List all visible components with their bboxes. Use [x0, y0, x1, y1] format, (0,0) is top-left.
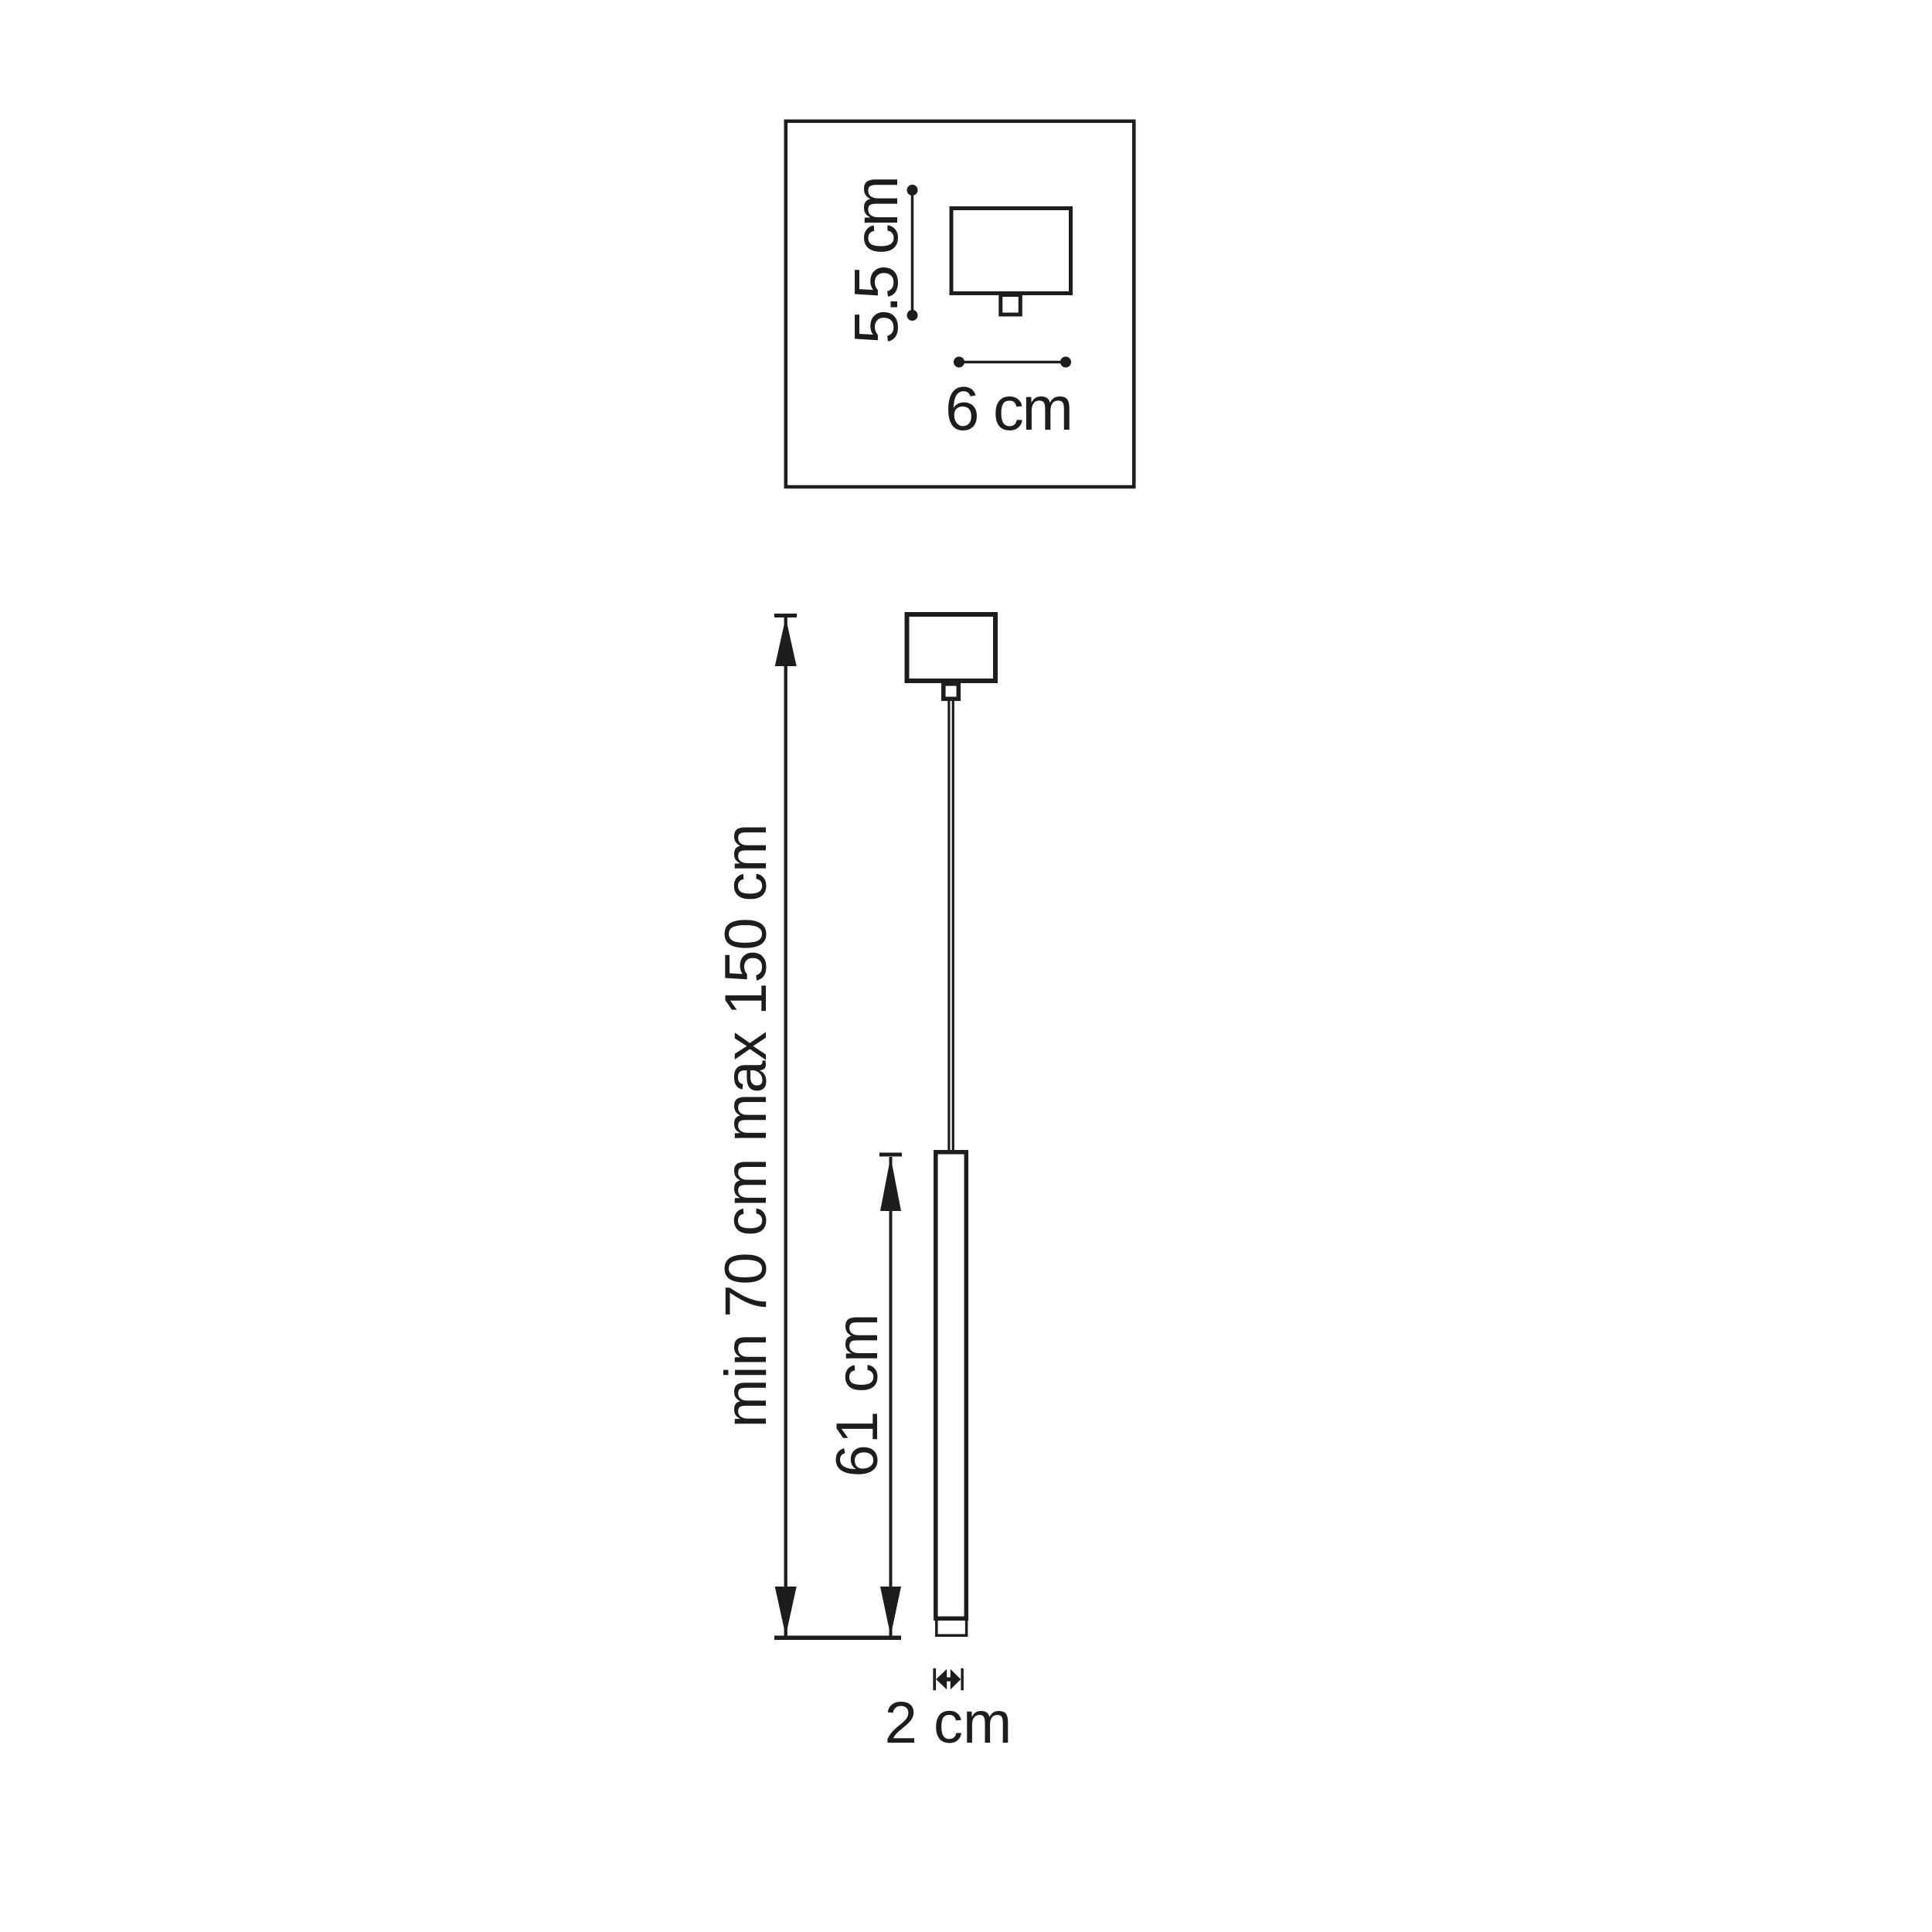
svg-text:min 70 cm max 150 cm: min 70 cm max 150 cm	[713, 824, 779, 1428]
svg-text:61 cm: 61 cm	[825, 1314, 890, 1478]
svg-text:2 cm: 2 cm	[885, 1690, 1012, 1756]
svg-text:5.5 cm: 5.5 cm	[842, 175, 910, 344]
svg-text:6 cm: 6 cm	[945, 374, 1073, 443]
